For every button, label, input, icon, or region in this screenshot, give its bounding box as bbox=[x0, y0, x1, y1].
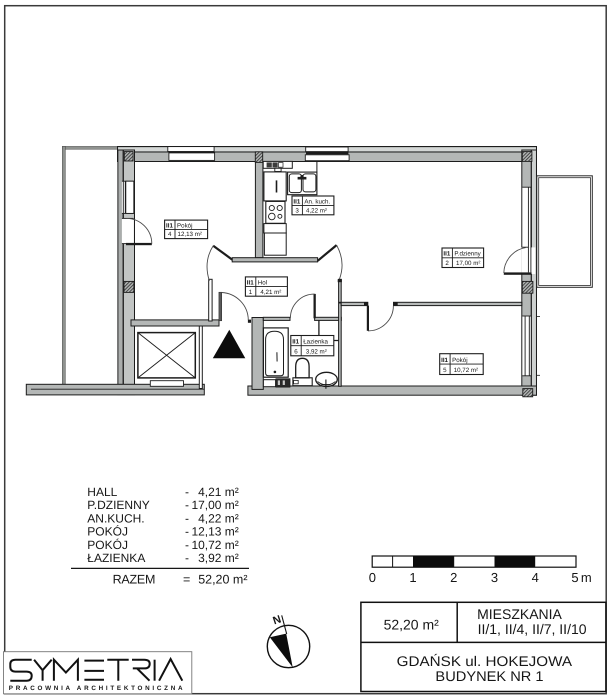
svg-text:-: - bbox=[185, 551, 189, 565]
svg-text:12,13 m²: 12,13 m² bbox=[178, 231, 202, 238]
svg-text:2: 2 bbox=[450, 570, 457, 585]
svg-text:-: - bbox=[185, 511, 189, 525]
svg-text:POKÓJ: POKÓJ bbox=[87, 525, 128, 539]
svg-text:-: - bbox=[185, 498, 189, 512]
svg-text:-: - bbox=[185, 538, 189, 552]
svg-text:52,20 m²: 52,20 m² bbox=[198, 573, 247, 587]
svg-text:II1: II1 bbox=[443, 251, 450, 258]
svg-text:2: 2 bbox=[445, 260, 449, 267]
svg-text:6: 6 bbox=[294, 348, 298, 355]
svg-text:An. kuch.: An. kuch. bbox=[304, 198, 330, 205]
svg-text:3: 3 bbox=[295, 207, 299, 214]
svg-text:5: 5 bbox=[571, 570, 578, 585]
svg-text:1: 1 bbox=[249, 289, 253, 296]
svg-text:10,72 m²: 10,72 m² bbox=[191, 538, 238, 552]
svg-text:HALL: HALL bbox=[87, 485, 117, 499]
svg-text:4,22 m²: 4,22 m² bbox=[306, 207, 327, 214]
svg-text:-: - bbox=[185, 525, 189, 539]
svg-text:1: 1 bbox=[409, 570, 416, 585]
svg-text:P.DZIENNY: P.DZIENNY bbox=[87, 498, 149, 512]
svg-text:GDAŃSK ul. HOKEJOWA: GDAŃSK ul. HOKEJOWA bbox=[397, 653, 573, 669]
svg-text:AN.KUCH.: AN.KUCH. bbox=[87, 511, 144, 525]
svg-text:4,22 m²: 4,22 m² bbox=[198, 511, 239, 525]
svg-text:ŁAZIENKA: ŁAZIENKA bbox=[87, 551, 145, 565]
svg-text:17,00 m²: 17,00 m² bbox=[456, 260, 480, 267]
svg-text:=: = bbox=[183, 573, 190, 587]
svg-text:II1: II1 bbox=[166, 222, 173, 229]
svg-text:3: 3 bbox=[491, 570, 498, 585]
svg-text:4: 4 bbox=[168, 231, 172, 238]
svg-text:17,00 m²: 17,00 m² bbox=[191, 498, 238, 512]
svg-text:5: 5 bbox=[443, 367, 447, 374]
svg-text:-: - bbox=[185, 485, 189, 499]
svg-text:P.dzienny: P.dzienny bbox=[454, 251, 481, 258]
svg-text:10,72 m²: 10,72 m² bbox=[454, 367, 478, 374]
svg-text:4,21 m²: 4,21 m² bbox=[260, 289, 281, 296]
svg-text:m: m bbox=[581, 570, 592, 585]
svg-text:4: 4 bbox=[532, 570, 539, 585]
svg-text:N: N bbox=[271, 614, 282, 628]
svg-text:52,20 m²: 52,20 m² bbox=[384, 616, 440, 632]
svg-text:4,21 m²: 4,21 m² bbox=[198, 485, 239, 499]
svg-text:II1: II1 bbox=[292, 338, 299, 345]
svg-text:12,13 m²: 12,13 m² bbox=[191, 525, 238, 539]
svg-text:PRACOWNIA ARCHITEKTONICZNA: PRACOWNIA ARCHITEKTONICZNA bbox=[9, 685, 185, 692]
svg-text:BUDYNEK NR 1: BUDYNEK NR 1 bbox=[435, 668, 543, 684]
svg-text:MIESZKANIA: MIESZKANIA bbox=[477, 606, 562, 622]
svg-text:Pokój: Pokój bbox=[177, 222, 192, 229]
svg-text:Pokój: Pokój bbox=[452, 357, 467, 364]
svg-text:POKÓJ: POKÓJ bbox=[87, 538, 128, 552]
svg-text:RAZEM: RAZEM bbox=[113, 573, 156, 587]
svg-text:Hol: Hol bbox=[258, 279, 267, 286]
svg-text:II/1, II/4, II/7, II/10: II/1, II/4, II/7, II/10 bbox=[478, 621, 587, 637]
svg-text:II1: II1 bbox=[247, 279, 254, 286]
svg-text:3,92 m²: 3,92 m² bbox=[198, 551, 239, 565]
svg-text:3,92 m²: 3,92 m² bbox=[306, 348, 327, 355]
svg-text:II1: II1 bbox=[293, 198, 300, 205]
svg-text:0: 0 bbox=[369, 570, 376, 585]
svg-text:Łazienka: Łazienka bbox=[303, 338, 328, 345]
svg-text:II1: II1 bbox=[441, 357, 448, 364]
